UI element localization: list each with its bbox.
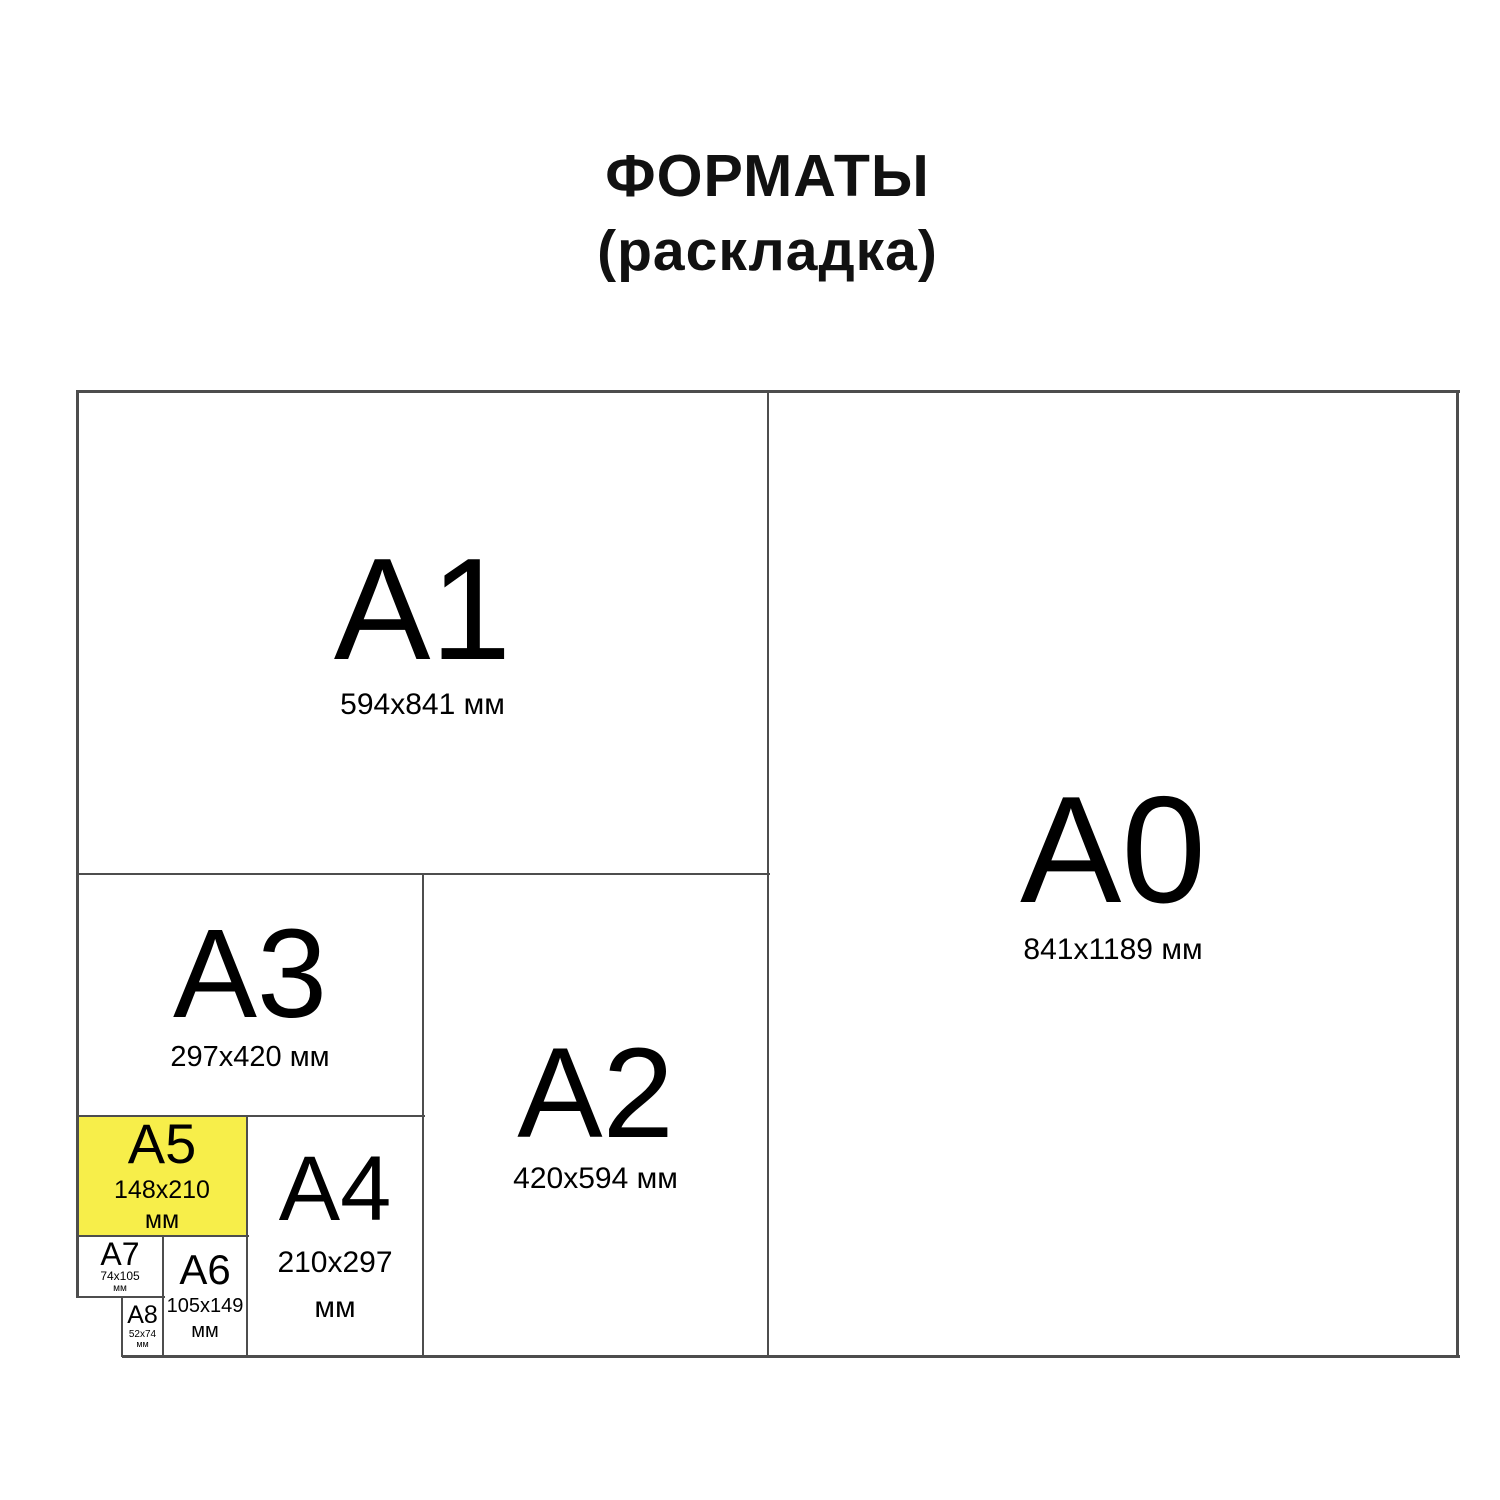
paper-formats-diagram: ФОРМАТЫ (раскладка) A1 594x841 мм A0 841…: [0, 0, 1500, 1500]
format-a1-label: A1: [334, 543, 511, 676]
format-a4-unit: мм: [314, 1288, 355, 1327]
format-cell-a1: A1 594x841 мм: [77, 391, 768, 874]
grid-line-a8-left: [121, 1296, 123, 1357]
format-a4-dimensions: 210x297: [277, 1243, 392, 1282]
format-cell-a0: A0 841x1189 мм: [768, 391, 1458, 1357]
format-a3-label: A3: [173, 916, 327, 1032]
format-a3-dimensions: 297x420 мм: [170, 1041, 329, 1074]
format-a6-label: A6: [179, 1249, 230, 1291]
format-a1-dimensions: 594x841 мм: [340, 688, 505, 722]
format-cell-a7: A7 74x105 мм: [77, 1236, 163, 1297]
format-a4-label: A4: [279, 1146, 392, 1233]
grid-line-outer-left: [76, 390, 79, 1298]
grid-line-outer-bottom: [122, 1355, 1460, 1358]
format-a8-label: A8: [127, 1304, 158, 1328]
format-cell-a6: A6 105x149 мм: [163, 1236, 247, 1357]
format-a7-label: A7: [100, 1239, 139, 1269]
format-a5-label: A5: [128, 1117, 197, 1170]
format-a5-unit: мм: [145, 1205, 179, 1235]
format-cell-a5-highlighted: A5 148x210 мм: [77, 1116, 247, 1236]
title-line-2: (раскладка): [77, 214, 1458, 288]
diagram-title: ФОРМАТЫ (раскладка): [77, 138, 1458, 288]
grid-line-a5-a4-divider: [246, 1115, 248, 1357]
grid-line-a7-a6-divider: [162, 1235, 164, 1357]
format-a6-unit: мм: [191, 1319, 219, 1344]
format-a0-dimensions: 841x1189 мм: [1023, 933, 1202, 967]
format-cell-a2: A2 420x594 мм: [423, 874, 768, 1357]
format-a6-dimensions: 105x149: [167, 1294, 244, 1319]
grid-line-outer-right: [1456, 390, 1459, 1358]
grid-line-a1-a0-divider: [767, 390, 769, 1357]
title-line-1: ФОРМАТЫ: [77, 138, 1458, 214]
format-a5-dimensions: 148x210: [114, 1175, 210, 1205]
grid-line-a3-a2-divider: [422, 873, 424, 1357]
format-a2-dimensions: 420x594 мм: [513, 1162, 678, 1196]
format-cell-a3: A3 297x420 мм: [77, 874, 423, 1116]
format-a7-dimensions: 74x105: [100, 1270, 139, 1283]
format-cell-a8: A8 52x74 мм: [122, 1297, 163, 1357]
format-a8-unit: мм: [136, 1340, 148, 1350]
format-cell-a4: A4 210x297 мм: [247, 1116, 423, 1357]
format-a7-unit: мм: [113, 1283, 127, 1294]
format-a0-label: A0: [1020, 781, 1206, 921]
format-a2-label: A2: [517, 1035, 674, 1153]
grid-line-a3-bottom: [77, 1115, 425, 1117]
